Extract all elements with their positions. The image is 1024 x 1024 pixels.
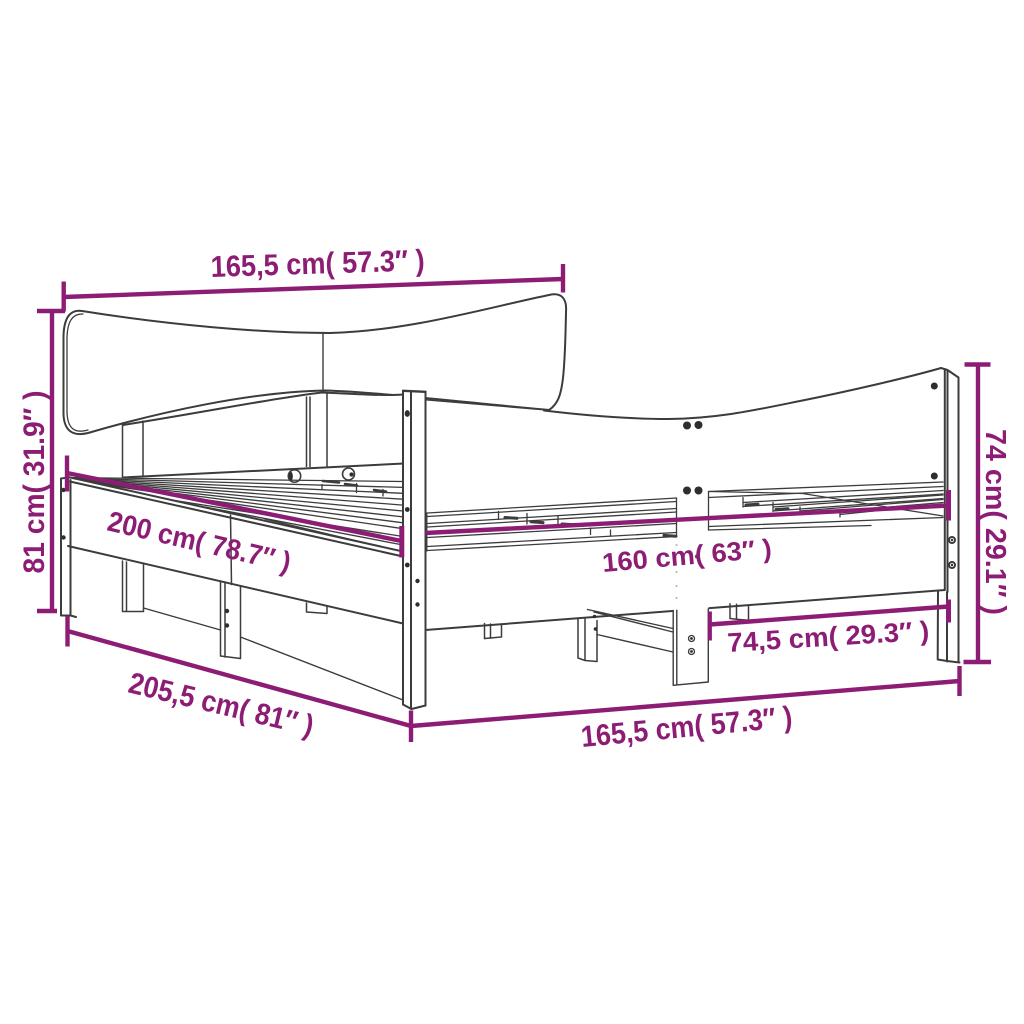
svg-text:165,5 cm( 57.3″ ): 165,5 cm( 57.3″ ) <box>210 244 425 284</box>
svg-text:81 cm( 31.9″ ): 81 cm( 31.9″ ) <box>18 391 51 574</box>
svg-text:74 cm( 29.1″ ): 74 cm( 29.1″ ) <box>979 429 1011 615</box>
